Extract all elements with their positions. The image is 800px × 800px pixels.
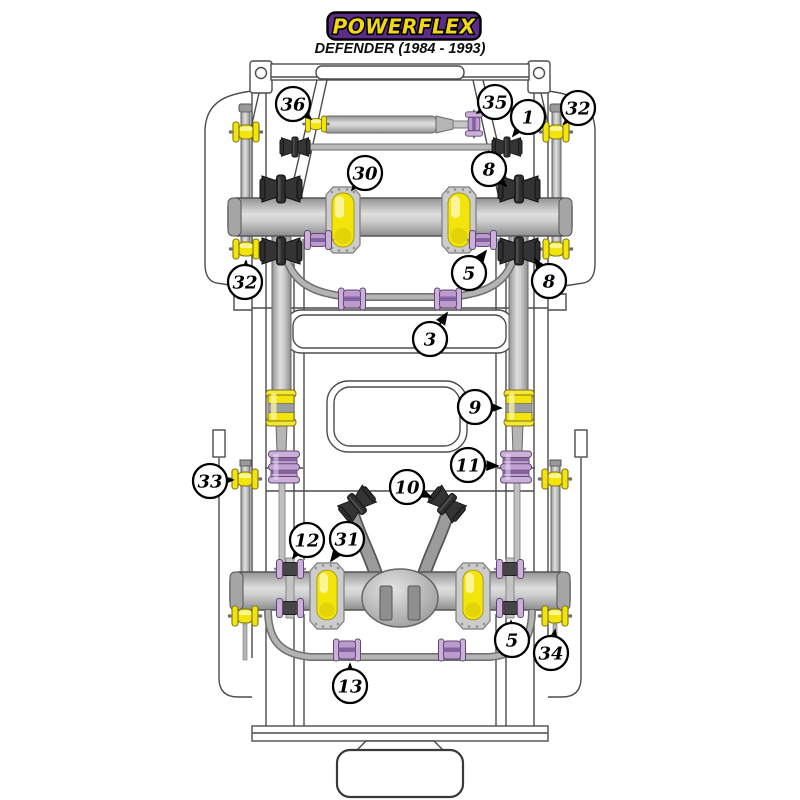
transmission-opening	[327, 381, 467, 452]
front-axle-bush	[302, 231, 334, 250]
fuel-tank	[337, 750, 463, 797]
callout-arrow	[331, 553, 337, 561]
callout-label: 30	[352, 164, 378, 185]
radius-arm-bush	[260, 175, 302, 203]
callout-label: 8	[482, 160, 496, 181]
rear-shock-mount-bush	[494, 560, 526, 579]
front-shock-lower-bush	[539, 239, 573, 259]
callout-label: 13	[337, 677, 362, 698]
engine-bay-outline	[286, 310, 513, 353]
rear-left-shock	[240, 460, 251, 466]
radius-arm-bush	[498, 175, 540, 203]
powerflex-logo: POWERFLEX	[326, 11, 482, 41]
callout-arrow	[423, 494, 431, 497]
rear-right-shock	[550, 460, 561, 466]
rear-shock-upper-bush	[538, 469, 572, 489]
model-subtitle: DEFENDER (1984 - 1993)	[270, 41, 530, 57]
rear-shock-mount-bush	[494, 599, 526, 618]
front-axle-bush	[467, 231, 499, 250]
front-arb-bush	[435, 288, 462, 310]
chassis-frame	[205, 61, 595, 797]
rear-shock-lower-bush	[228, 606, 262, 626]
right-shock-mount-tab	[575, 430, 587, 457]
callout-label: 34	[538, 644, 563, 665]
left-shock-mount-tab	[213, 430, 225, 457]
trailing-arm-chassis-bush	[269, 451, 300, 483]
rear-shock-lower-bush	[538, 606, 572, 626]
rear-shock-mount-bush	[274, 599, 306, 618]
rear-shock-mount-bush	[274, 560, 306, 579]
page: 3635132308532839113310123153413 POWERFLE…	[0, 0, 800, 800]
callout-label: 9	[469, 398, 482, 419]
defender-chassis-diagram: 3635132308532839113310123153413	[0, 0, 800, 800]
callout-label: 31	[334, 530, 359, 551]
callout-label: 10	[394, 478, 420, 499]
steering-damper	[324, 116, 436, 133]
trailing-arm-front-bush	[504, 390, 534, 426]
drag-link-bush	[280, 137, 310, 157]
front-arb-bush	[339, 288, 366, 310]
callout-arrow	[479, 251, 486, 260]
front-shock-upper-bush	[229, 122, 263, 142]
rear-arb-bush	[439, 639, 466, 661]
callout-label: 1	[522, 108, 535, 129]
callout-label: 32	[232, 273, 257, 294]
callout-label: 8	[542, 272, 556, 293]
rear-arb-bush	[334, 639, 361, 661]
callout-label: 5	[506, 631, 519, 652]
front-shock-lower-bush	[229, 239, 263, 259]
rear-shock-upper-bush	[228, 469, 262, 489]
steering-damper-link-bush	[465, 110, 482, 139]
callout-label: 11	[455, 456, 480, 477]
callout-label: 35	[482, 93, 507, 114]
bulkhead-top	[316, 66, 464, 79]
radius-arm-bush	[498, 237, 540, 265]
front-left-shock	[239, 104, 252, 112]
rear-differential	[362, 569, 438, 627]
callout-label: 32	[565, 99, 590, 120]
logo-text: POWERFLEX	[333, 15, 477, 39]
callout-label: 36	[280, 95, 306, 116]
callout-label: 5	[463, 264, 476, 285]
callout-label: 12	[294, 531, 319, 552]
trailing-arm-chassis-bush	[501, 451, 532, 483]
drag-link	[293, 144, 509, 150]
radius-arm-bush	[260, 237, 302, 265]
steering-damper-end-bush	[302, 116, 330, 132]
front-axle-tube	[228, 198, 572, 236]
callout-label: 33	[197, 472, 222, 493]
trailing-arm-front-bush	[266, 390, 296, 426]
callout-label: 3	[424, 330, 437, 351]
